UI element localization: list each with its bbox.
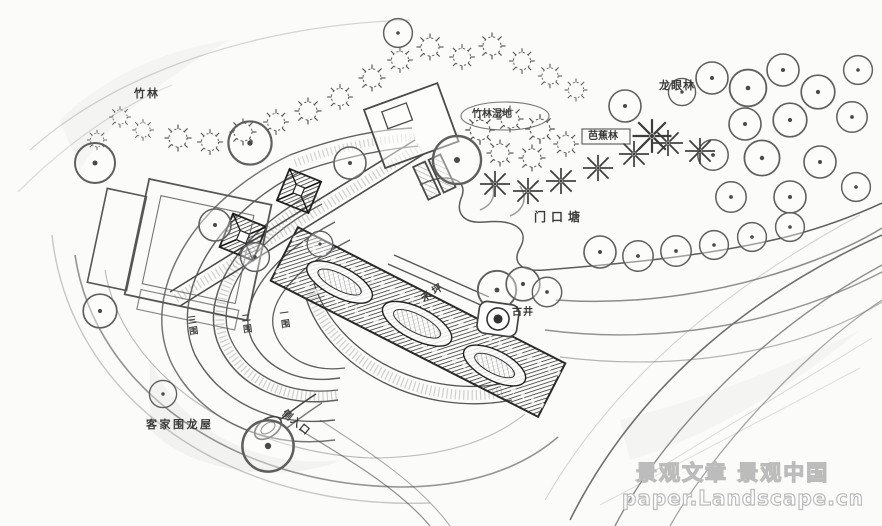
sketch-drawing	[0, 0, 882, 526]
label-bamboo-forest: 竹林	[134, 88, 160, 99]
label-ancient-well: 古井	[512, 308, 534, 318]
label-banana-grove: 芭蕉林	[588, 132, 618, 142]
watermark-line1: 景观文章 景观中国	[636, 457, 829, 487]
label-ring-2: 二围	[239, 313, 251, 336]
label-entrance-pond: 门口塘	[534, 211, 585, 223]
site-plan-sketch: 竹林 竹林湿地 龙眼林 芭蕉林 门口塘 禾坪 古井 三围 二围 一围 客家围龙屋…	[0, 0, 882, 526]
label-bamboo-wetland: 竹林湿地	[472, 110, 512, 120]
bamboo-trees	[87, 33, 588, 155]
label-ring-1: 一围	[277, 308, 289, 331]
label-longan-forest: 龙眼林	[659, 80, 695, 91]
axis-pavilion-2	[277, 169, 321, 213]
longan-forest-trees	[584, 54, 872, 271]
ancient-well	[476, 267, 562, 337]
watermark-line2: paper.Landscape.cn	[622, 486, 864, 510]
label-hakka-house: 客家围龙屋	[146, 419, 214, 430]
label-ring-3: 三围	[185, 315, 197, 338]
